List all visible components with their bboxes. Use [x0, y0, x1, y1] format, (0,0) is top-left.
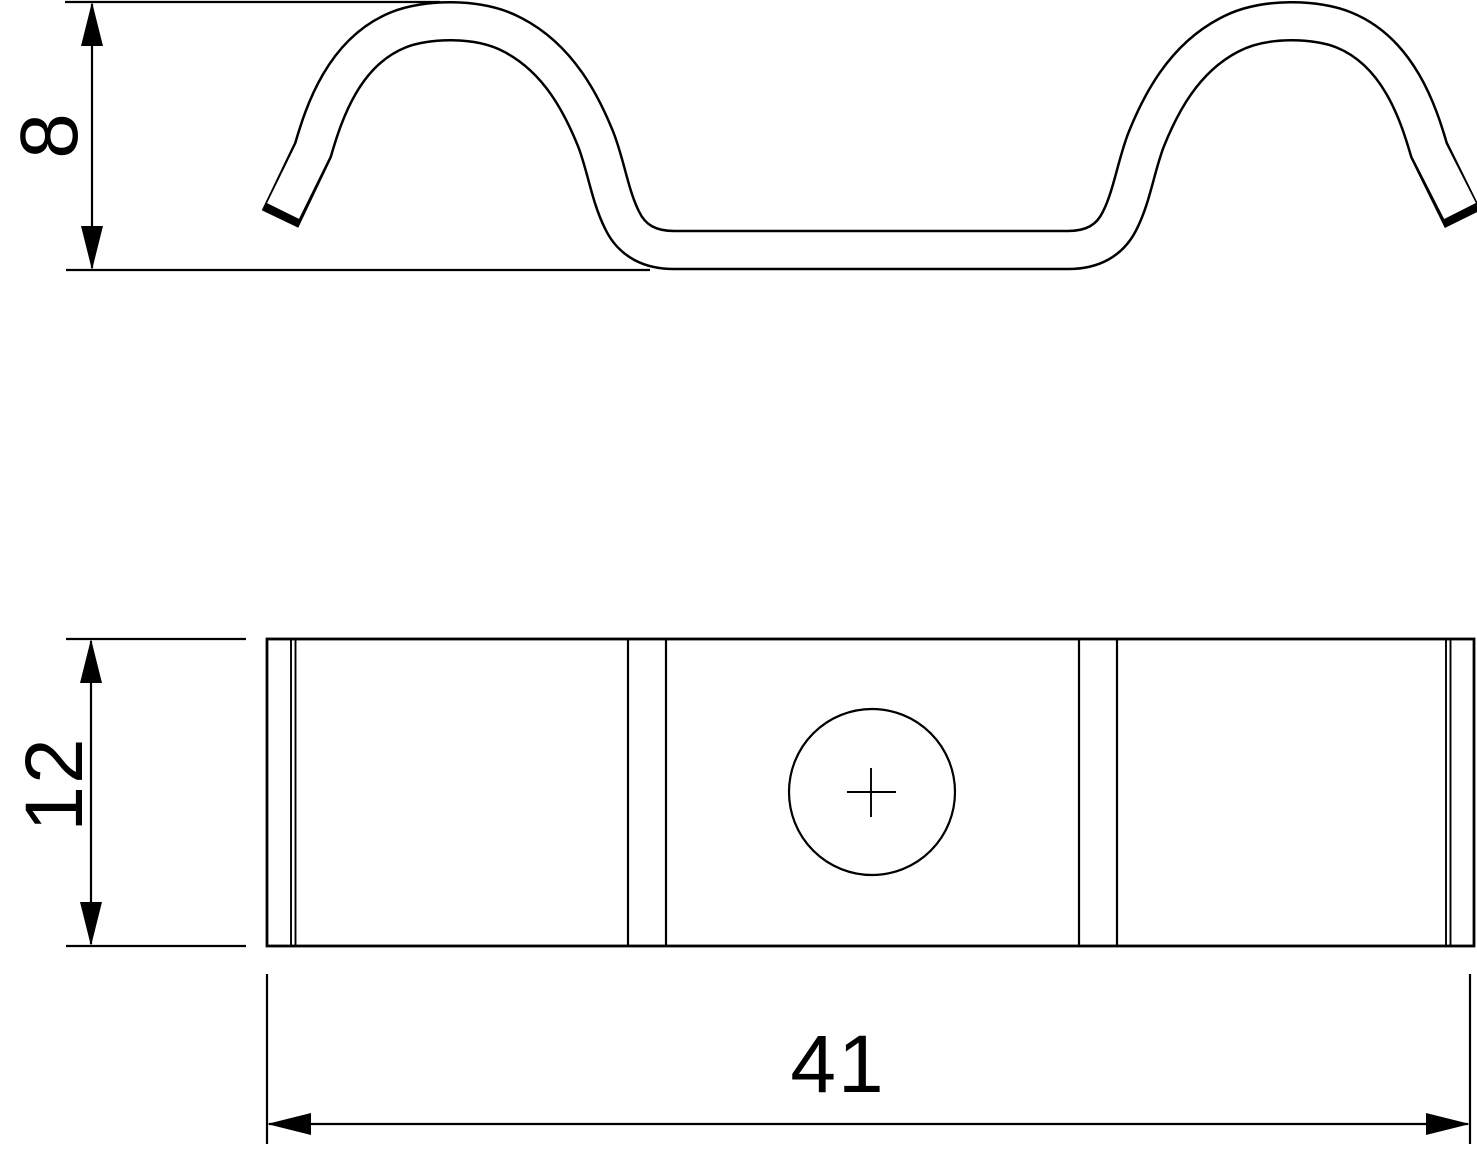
arrow-down-icon [80, 902, 102, 946]
dimension-length-41: 41 [267, 974, 1470, 1144]
clip-profile-outer [280, 21, 1463, 250]
dimension-label-41: 41 [790, 1019, 885, 1110]
dimension-label-12: 12 [9, 736, 100, 831]
arrow-down-icon [81, 226, 103, 270]
center-mark-icon [847, 768, 896, 817]
arrow-up-icon [80, 639, 102, 683]
clip-profile-inner [283, 21, 1460, 250]
dimension-width-12: 12 [9, 639, 246, 946]
plan-view [267, 639, 1474, 946]
side-view [280, 21, 1463, 250]
dimension-label-8: 8 [4, 111, 95, 159]
arrow-left-icon [267, 1113, 311, 1135]
technical-drawing-canvas: 8 12 41 [0, 0, 1477, 1150]
arrow-up-icon [81, 2, 103, 46]
arrow-right-icon [1426, 1113, 1470, 1135]
